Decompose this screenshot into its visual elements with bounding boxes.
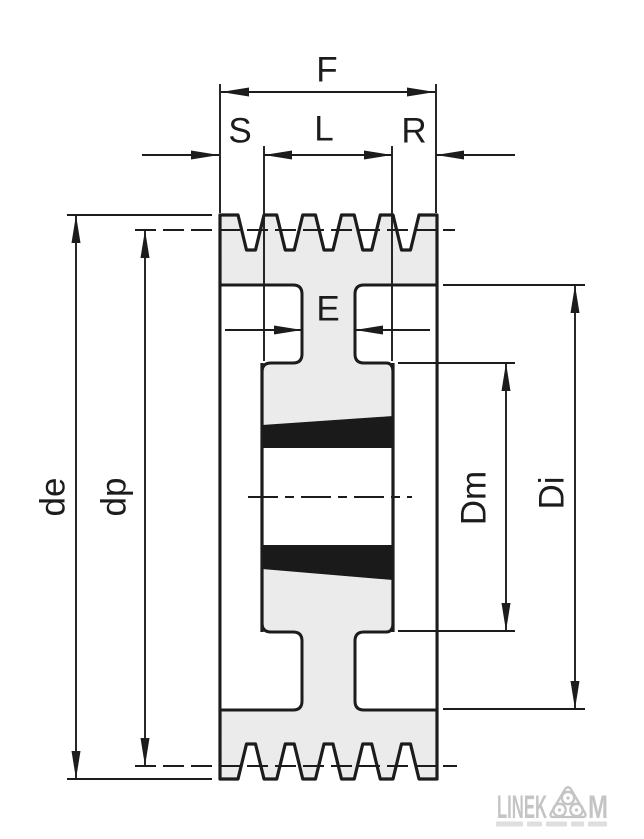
three-roller-triangle-icon bbox=[550, 787, 585, 817]
label-S: S bbox=[228, 112, 251, 151]
drawing-canvas: F S L R E de dp Dm Di LINEK M bbox=[0, 0, 644, 839]
logo-text-left: LINEK bbox=[497, 789, 547, 825]
label-L: L bbox=[314, 110, 333, 149]
logo-text-right: M bbox=[588, 789, 608, 825]
label-F: F bbox=[316, 51, 337, 90]
logo-tagline bbox=[496, 822, 607, 827]
label-Dm: Dm bbox=[455, 471, 494, 525]
label-R: R bbox=[401, 112, 426, 151]
label-de: de bbox=[34, 478, 73, 517]
pulley-technical-drawing: F S L R E de dp Dm Di LINEK M bbox=[0, 0, 644, 839]
label-E: E bbox=[316, 290, 339, 329]
linekom-logo: LINEK M bbox=[496, 787, 608, 826]
label-dp: dp bbox=[95, 478, 134, 517]
label-Di: Di bbox=[533, 476, 572, 509]
